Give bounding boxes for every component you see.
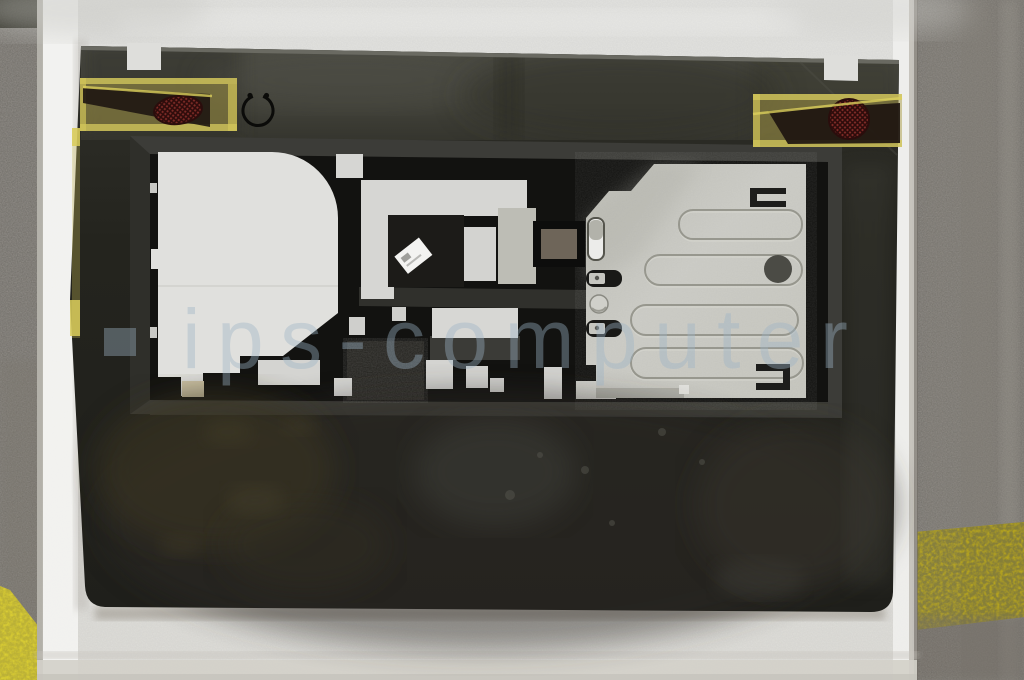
svg-text:ips-computer: ips-computer [182, 292, 864, 386]
